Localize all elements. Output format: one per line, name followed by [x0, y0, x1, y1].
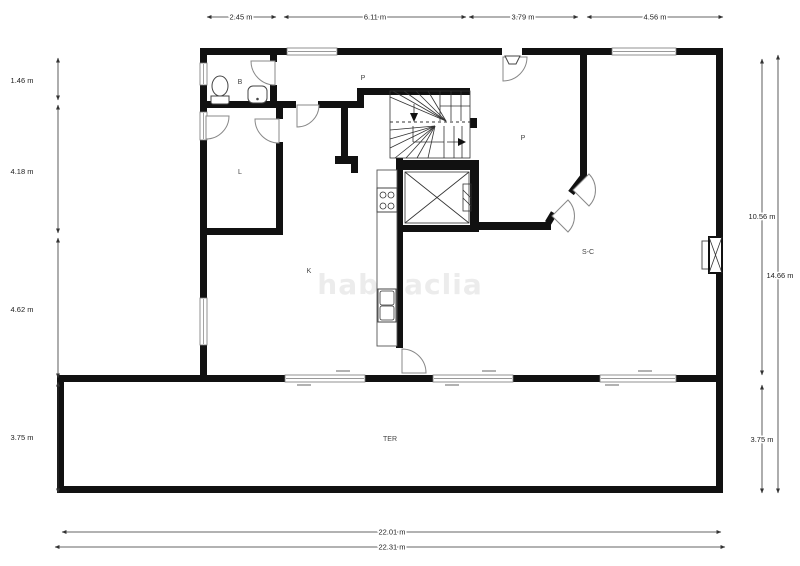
living-double-door-arc-1: [573, 174, 595, 206]
dim-label-top-3: 4.56 m: [644, 13, 667, 22]
radiator-icon: [702, 237, 722, 273]
floorplan-svg: habitaclia: [0, 0, 800, 566]
dimension-lines-bottom: 22.01 m 22.31 m: [55, 528, 725, 552]
room-label-kitchen: K: [307, 268, 312, 275]
room-labels: B P P L K S-C TER: [238, 75, 594, 443]
hall-door-arc: [297, 105, 319, 127]
kitchen-sink-icon: [378, 289, 396, 322]
room-label-terrace: TER: [383, 436, 397, 443]
kitchen-living-door-arc: [402, 349, 426, 373]
laundry-left-door-arc: [206, 116, 229, 139]
dim-label-top-0: 2.45 m: [230, 13, 253, 22]
bath-sink-icon: [248, 86, 267, 103]
dim-label-bottom-1: 22.31 m: [378, 543, 405, 552]
room-label-living: S-C: [582, 249, 594, 256]
stairs-icon: [390, 91, 470, 158]
dim-label-bottom-0: 22.01 m: [378, 528, 405, 537]
toilet-icon: [211, 76, 229, 104]
room-label-hall-top: P: [361, 75, 366, 82]
dim-label-right-outer-0: 14.66 m: [766, 271, 793, 280]
dim-label-right-inner-1: 3.75 m: [751, 435, 774, 444]
room-label-hall-right: P: [521, 135, 526, 142]
dim-label-top-1: 6.11 m: [364, 13, 386, 22]
dimension-lines-right: 10.56 m 3.75 m 14.66 m: [748, 55, 793, 493]
room-label-laundry: L: [238, 169, 242, 176]
room-label-bathroom: B: [238, 79, 243, 86]
dim-label-top-2: 3.79 m: [512, 13, 535, 22]
dimension-lines-top: 2.45 m 6.11 m 3.79 m 4.56 m: [207, 13, 723, 22]
dim-label-left-0: 1.46 m: [11, 76, 34, 85]
elevator-shaft-icon: [405, 172, 471, 223]
bathroom-door-arc: [251, 61, 275, 85]
stove-icon: [377, 188, 397, 212]
floorplan-canvas: habitaclia: [0, 0, 800, 566]
living-double-door-arc-2: [552, 200, 574, 232]
dim-label-left-3: 3.75 m: [11, 433, 34, 442]
dim-label-left-1: 4.18 m: [11, 167, 34, 176]
dimension-lines-left: 1.46 m 4.18 m 4.62 m 3.75 m: [11, 58, 58, 493]
dim-label-left-2: 4.62 m: [11, 305, 34, 314]
laundry-right-door-arc: [255, 119, 279, 143]
dim-label-right-inner-0: 10.56 m: [748, 212, 775, 221]
